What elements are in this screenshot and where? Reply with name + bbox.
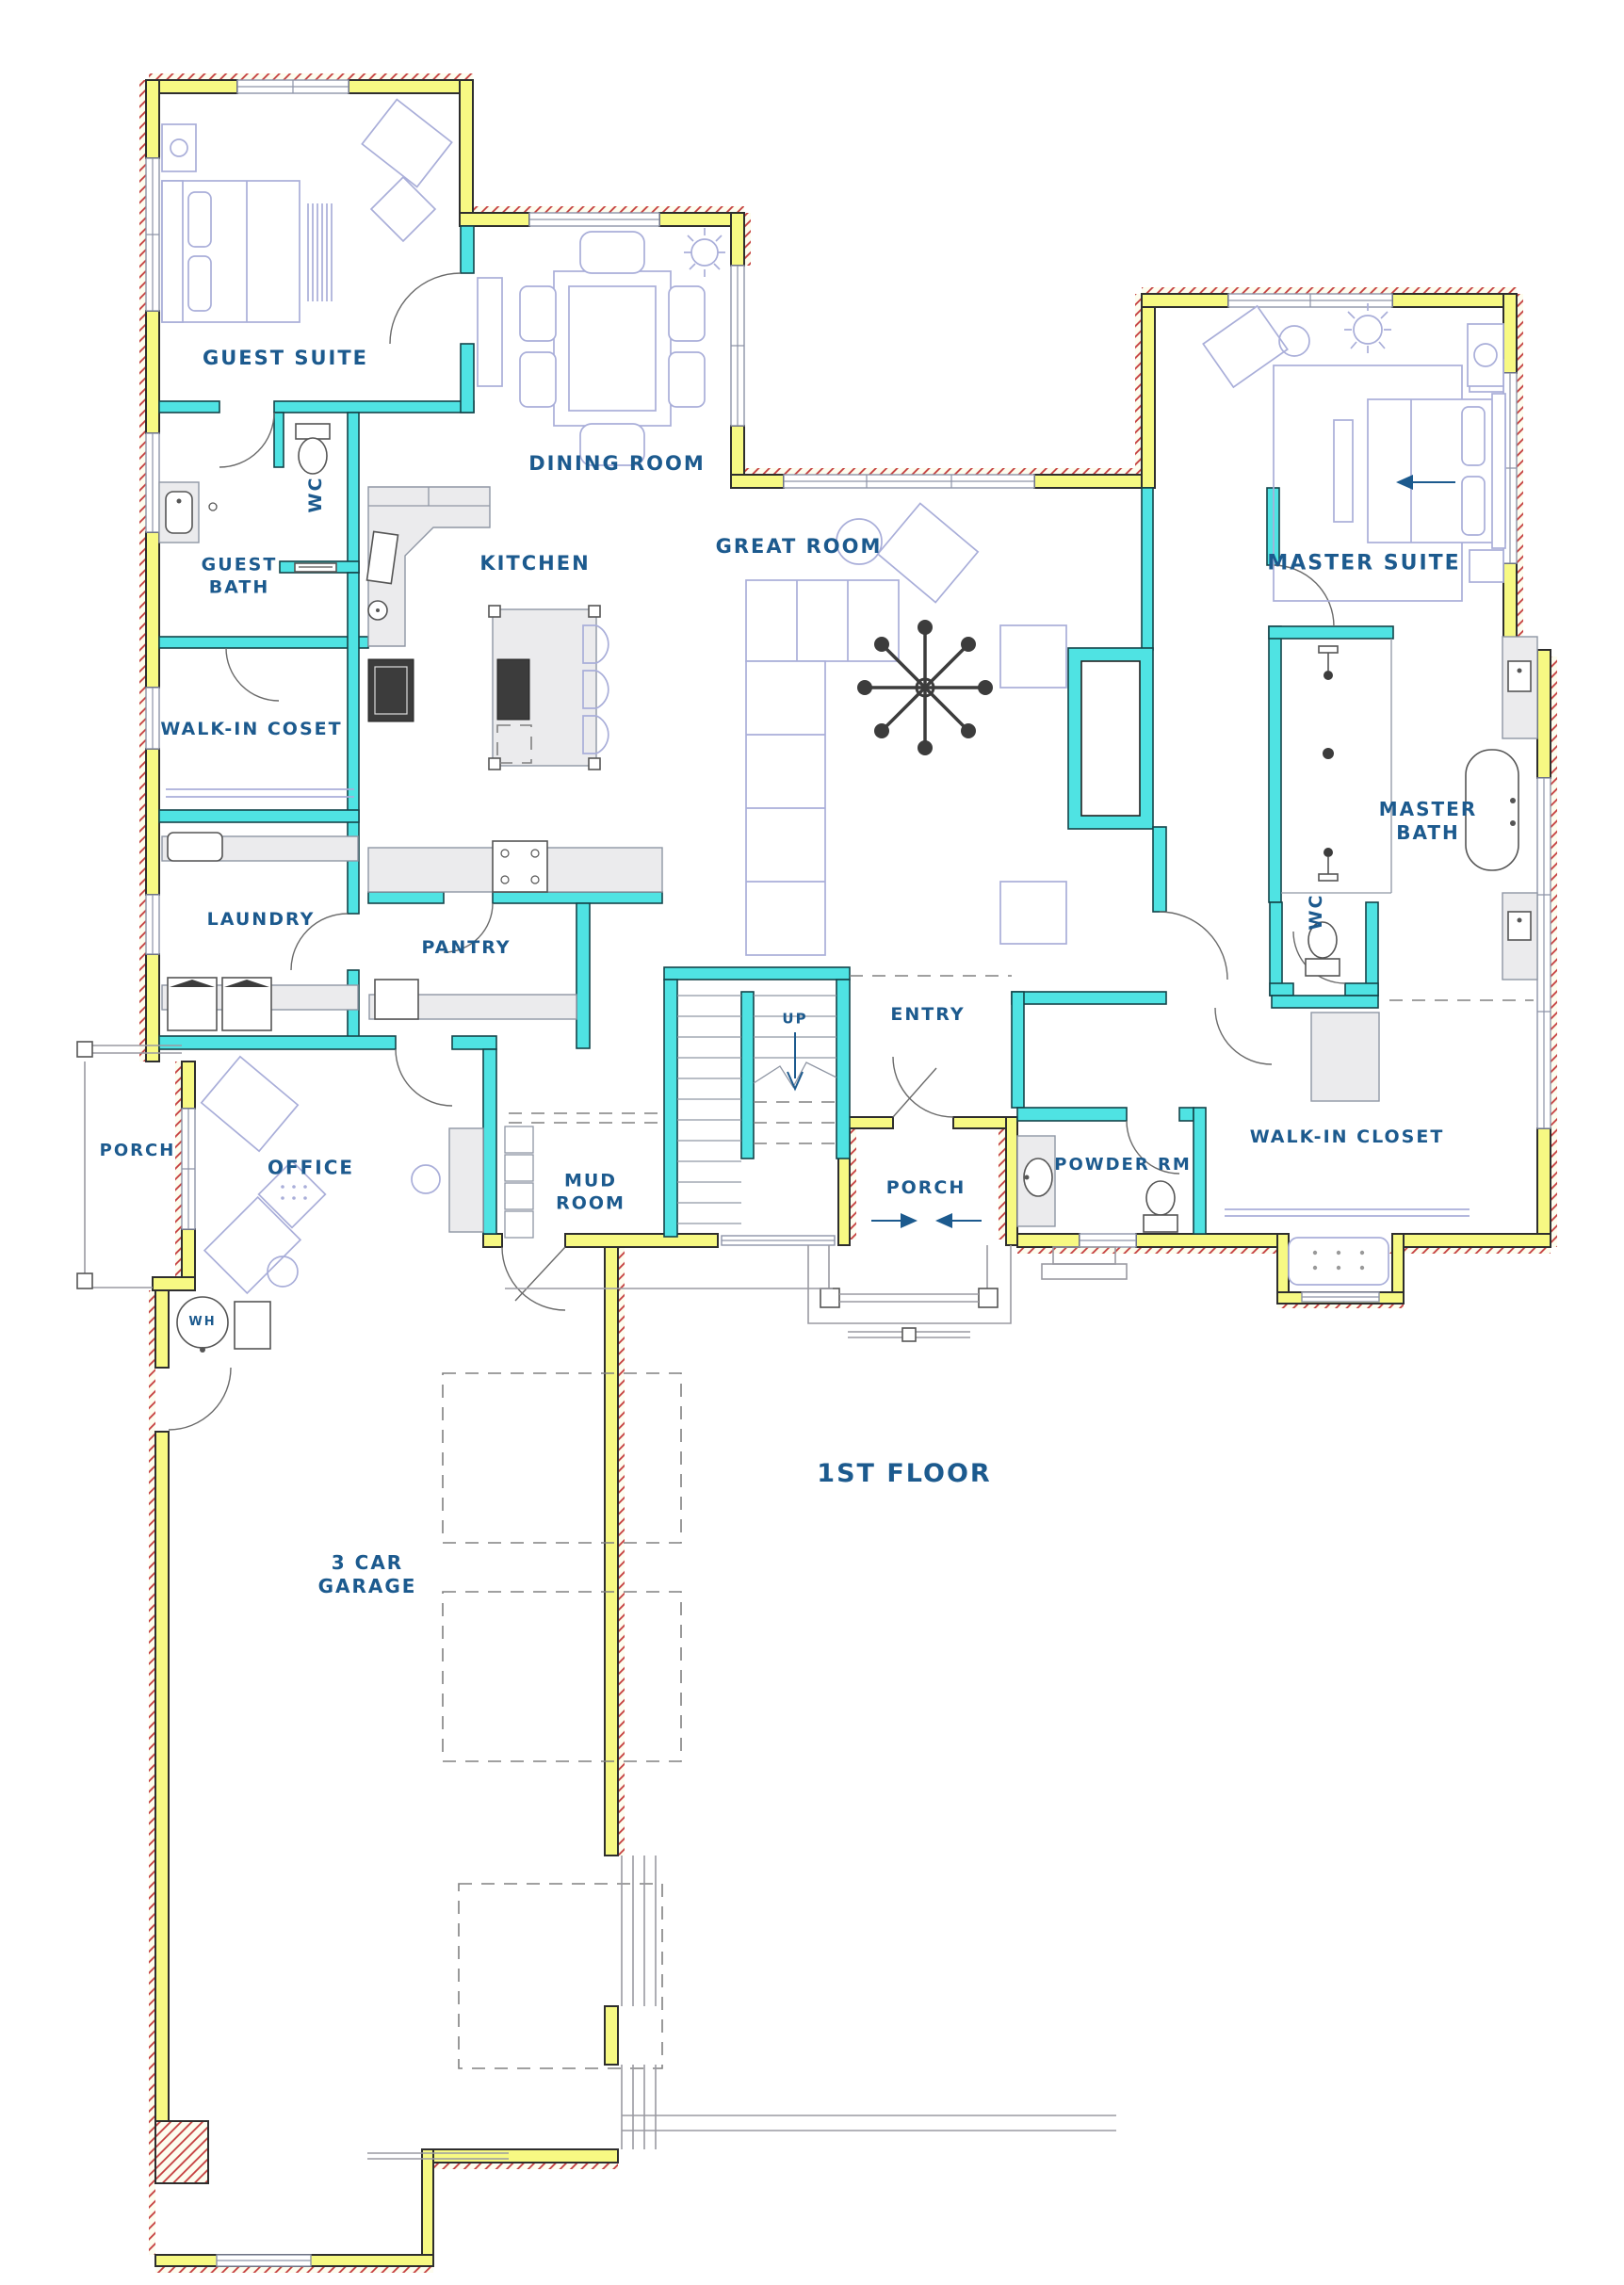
label-guest-bath: GUEST BATH <box>202 554 278 599</box>
floor-plan-canvas: GUEST SUITEDINING ROOMWCGUEST BATHKITCHE… <box>0 0 1624 2285</box>
label-entry: ENTRY <box>890 1004 965 1027</box>
label-floor-title: 1ST FLOOR <box>817 1458 991 1490</box>
label-laundry: LAUNDRY <box>207 909 316 932</box>
label-walk-in-coset: WALK-IN COSET <box>160 719 342 741</box>
label-kitchen: KITCHEN <box>479 551 590 575</box>
label-master-suite: MASTER SUITE <box>1267 550 1460 576</box>
label-pantry: PANTRY <box>421 937 511 960</box>
label-guest-suite: GUEST SUITE <box>203 346 368 370</box>
ceiling-fan-icon <box>857 620 993 755</box>
label-porch-south: PORCH <box>886 1177 966 1200</box>
label-wc-guest: WC <box>305 477 328 513</box>
label-mud-room: MUD ROOM <box>556 1170 625 1215</box>
label-garage: 3 CAR GARAGE <box>318 1551 417 1598</box>
label-wh: WH <box>188 1315 216 1330</box>
label-dining-room: DINING ROOM <box>528 451 706 476</box>
label-up: UP <box>782 1011 807 1029</box>
label-master-bath: MASTER BATH <box>1379 798 1478 845</box>
label-office: OFFICE <box>268 1157 354 1180</box>
label-porch-west: PORCH <box>100 1141 176 1162</box>
label-powder-rm: POWDER RM <box>1054 1155 1192 1176</box>
label-wc-master: WC <box>1306 894 1328 931</box>
label-walk-in-closet: WALK-IN CLOSET <box>1250 1126 1445 1149</box>
label-great-room: GREAT ROOM <box>716 534 883 559</box>
furniture <box>162 100 1505 1293</box>
stairs <box>677 996 836 1224</box>
